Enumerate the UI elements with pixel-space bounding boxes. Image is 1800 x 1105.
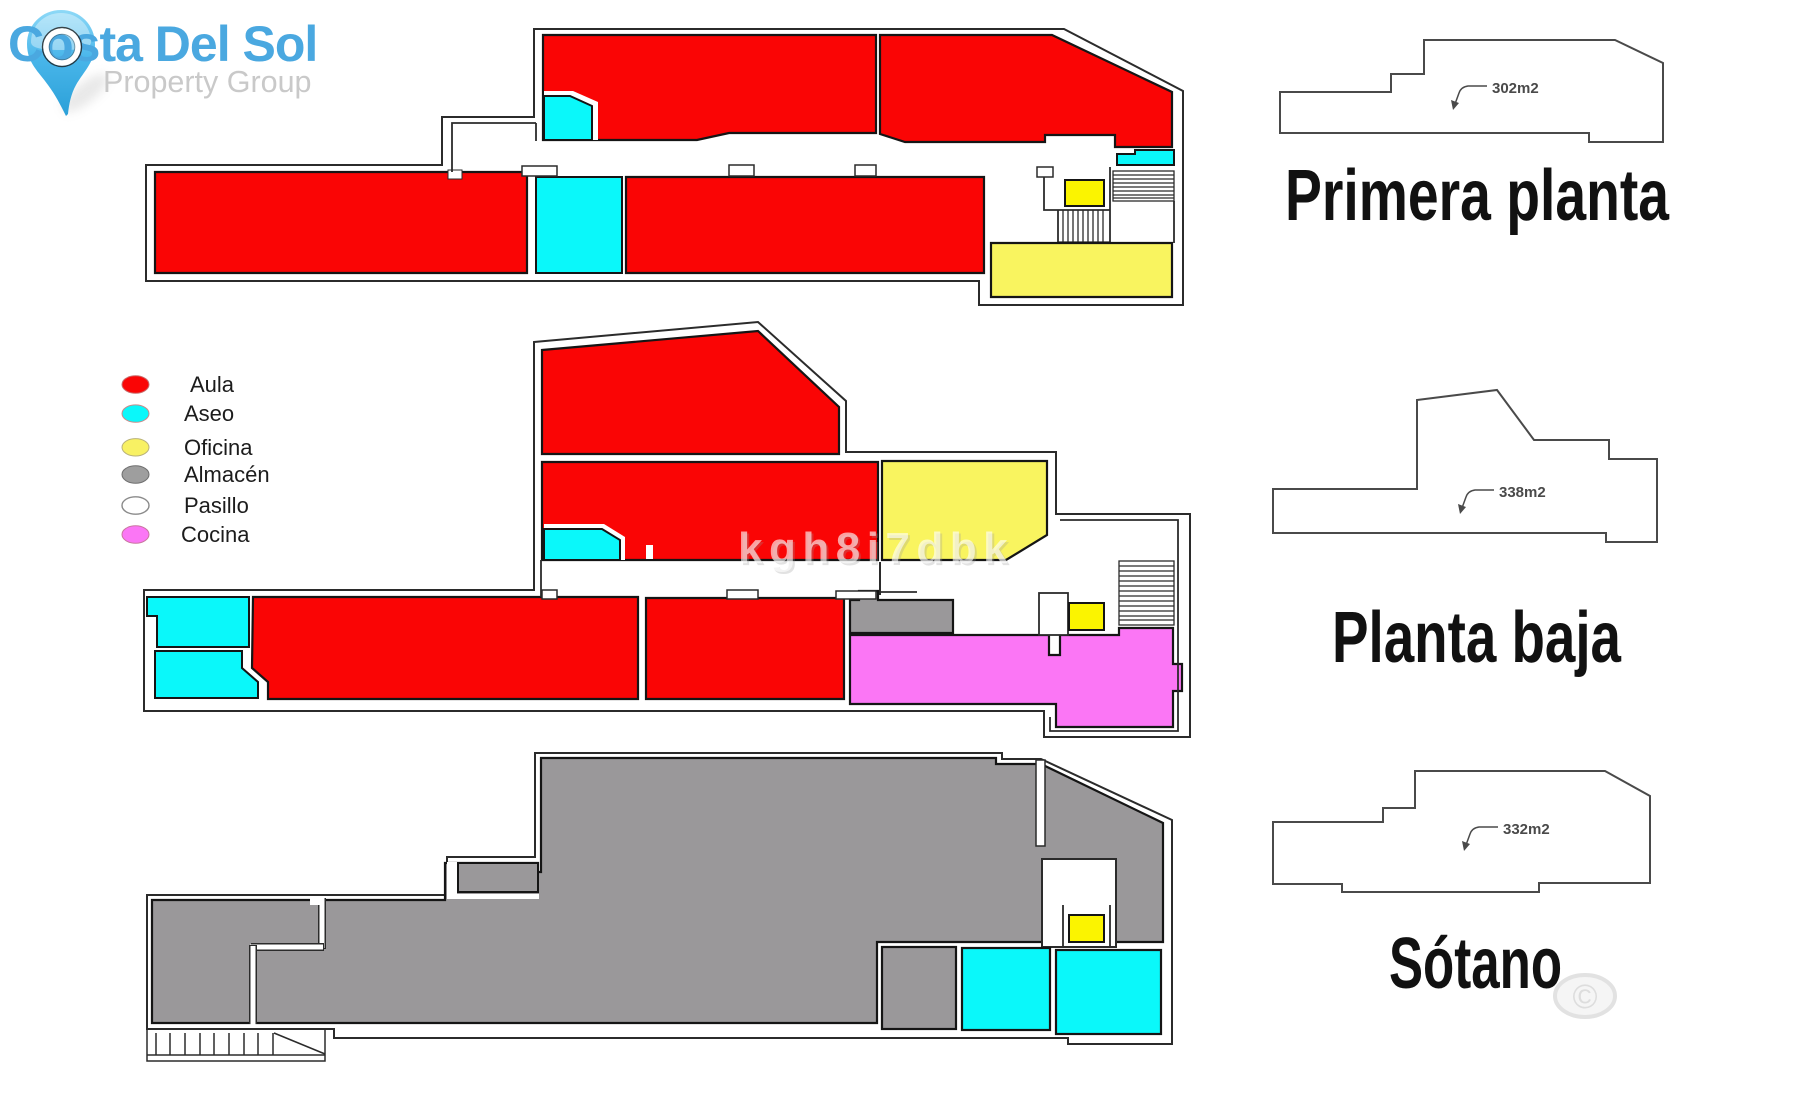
svg-text:©: © (1572, 978, 1597, 1016)
svg-text:332m2: 332m2 (1503, 821, 1550, 838)
svg-text:302m2: 302m2 (1492, 80, 1539, 97)
svg-text:Property Group: Property Group (103, 65, 312, 99)
svg-text:Oficina: Oficina (184, 435, 253, 460)
svg-text:Almacén: Almacén (184, 462, 270, 487)
svg-text:338m2: 338m2 (1499, 484, 1546, 501)
svg-text:Pasillo: Pasillo (184, 493, 249, 518)
svg-text:Primera planta: Primera planta (1285, 156, 1670, 236)
svg-text:kgh8i7dbk: kgh8i7dbk (738, 524, 1014, 573)
svg-text:Cocina: Cocina (181, 522, 250, 547)
svg-text:Planta baja: Planta baja (1332, 598, 1622, 678)
svg-text:Aula: Aula (190, 372, 235, 397)
svg-text:Aseo: Aseo (184, 401, 234, 426)
svg-text:Sótano: Sótano (1389, 924, 1562, 1004)
